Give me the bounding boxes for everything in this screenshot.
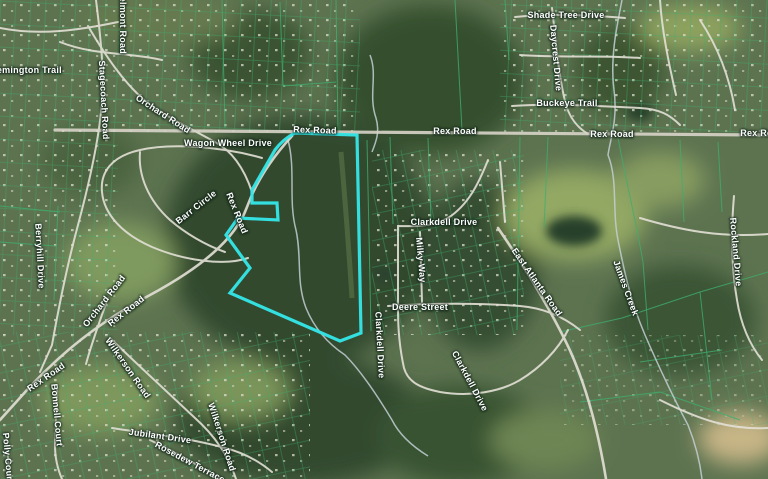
road-label: Orchard Road: [81, 273, 128, 329]
road-label: Clarkdell Drive: [373, 311, 386, 378]
road-label: Rex Road: [224, 191, 250, 235]
road-label: Wilkerson Road: [103, 336, 152, 400]
road-label: Stagecoach Road: [97, 60, 111, 140]
road-label: Rockland Drive: [728, 217, 744, 287]
road-label: East Atlanta Road: [510, 246, 565, 318]
road-label: Rex Road: [433, 126, 477, 136]
road-label: Rex Road: [25, 360, 66, 393]
road-label: Barr Circle: [174, 188, 219, 226]
road-label: Rex Road: [106, 294, 146, 329]
road-labels-layer: Remington TrailBelmont RoadStagecoach Ro…: [0, 0, 768, 479]
road-label: Berryhill Drive: [33, 223, 46, 289]
road-label: Wilkerson Road: [206, 401, 238, 472]
road-label: Rex Road: [740, 128, 768, 138]
road-label: Jubilant Drive: [128, 427, 192, 446]
road-label: Rex Road: [590, 129, 634, 139]
road-label: Rex Road: [293, 124, 337, 136]
road-label: Rosedew Terrace: [153, 439, 226, 479]
road-label: Shade Tree Drive: [527, 10, 604, 20]
road-label: Daycrest Drive: [548, 24, 564, 91]
road-label: Clarkdell Drive: [450, 349, 490, 413]
road-label: Orchard Road: [134, 93, 192, 136]
road-label: James Creek: [611, 259, 640, 317]
road-label: Deere Street: [392, 302, 448, 312]
road-label: Wagon Wheel Drive: [184, 138, 272, 148]
road-label: Bonnell Court: [49, 383, 64, 446]
road-label: Clarkdell Drive: [411, 217, 478, 227]
road-label: Milky Way: [414, 237, 428, 283]
road-label: Remington Trail: [0, 65, 62, 75]
road-label: Buckeye Trail: [536, 98, 597, 108]
satellite-map-viewport[interactable]: Remington TrailBelmont RoadStagecoach Ro…: [0, 0, 768, 479]
road-label: Polly Court: [1, 432, 15, 479]
road-label: Belmont Road: [118, 0, 128, 54]
